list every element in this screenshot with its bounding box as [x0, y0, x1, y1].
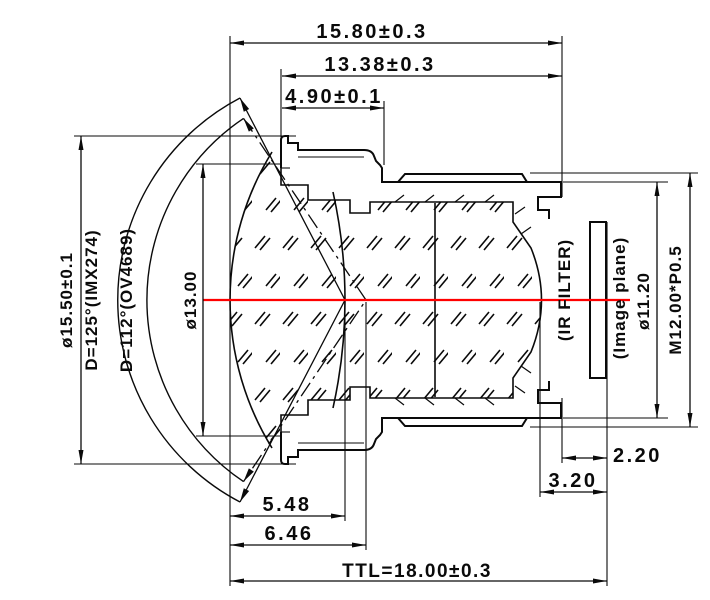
dim-total-width-label: 15.80±0.3 [316, 21, 427, 43]
dim-dome-diameter-label: ø15.50±0.1 [57, 252, 76, 348]
image-plane-label: (Image plane) [610, 237, 629, 360]
lens-section-drawing: 15.80±0.3 13.38±0.3 4.90±0.1 5.48 6.46 T… [0, 0, 710, 600]
dim-ttl-label: TTL=18.00±0.3 [342, 561, 492, 582]
lens-drawing-page: 15.80±0.3 13.38±0.3 4.90±0.1 5.48 6.46 T… [0, 0, 710, 600]
dim-barrel-width-label: 13.38±0.3 [324, 54, 435, 76]
fov-125-label: D=125°(IMX274) [82, 229, 101, 370]
dim-pupil-112-label: 6.46 [265, 523, 314, 545]
dim-rear-vertex-to-image-label: 3.20 [549, 470, 598, 492]
dim-pupil-125-label: 5.48 [263, 494, 312, 516]
dim-clear-aperture-label: ø13.00 [181, 271, 200, 330]
dim-flange-width-label: 4.90±0.1 [285, 86, 383, 108]
dim-image-circle-label: ø11.20 [634, 272, 653, 330]
dim-thread-label: M12.00*P0.5 [666, 245, 685, 354]
fov-112-label: D=112°(OV4689) [117, 228, 136, 372]
ir-filter-label: (IR FILTER) [555, 239, 574, 341]
dim-filter-to-image-label: 2.20 [613, 445, 662, 467]
